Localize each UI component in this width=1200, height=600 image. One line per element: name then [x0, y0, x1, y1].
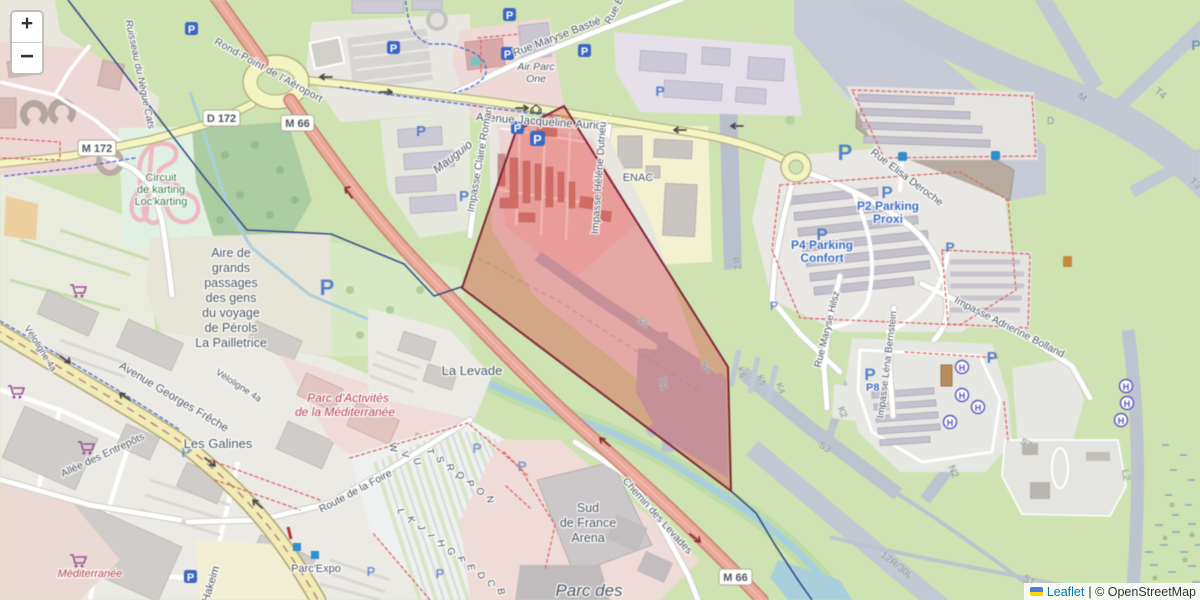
svg-text:Parc d'Activités: Parc d'Activités — [307, 391, 389, 405]
svg-text:D: D — [1047, 116, 1054, 127]
svg-text:Confort: Confort — [800, 251, 843, 265]
svg-text:H: H — [959, 391, 966, 401]
svg-text:P: P — [367, 564, 376, 579]
svg-text:D 172: D 172 — [207, 113, 236, 125]
svg-text:M 172: M 172 — [82, 143, 113, 155]
svg-text:passages: passages — [204, 276, 258, 290]
svg-text:P: P — [533, 132, 542, 147]
svg-text:Circuit: Circuit — [145, 172, 176, 184]
svg-text:La Pailletrice: La Pailletrice — [195, 336, 267, 350]
svg-text:R1: R1 — [656, 377, 669, 392]
svg-text:Méditerranée: Méditerranée — [58, 568, 123, 580]
svg-text:Les Galines: Les Galines — [184, 436, 253, 451]
svg-text:P: P — [506, 10, 513, 22]
svg-text:de karting: de karting — [137, 184, 185, 196]
svg-text:P: P — [655, 83, 664, 99]
svg-text:P: P — [390, 43, 397, 55]
svg-text:P2 Parking: P2 Parking — [857, 199, 919, 213]
svg-text:P: P — [1191, 37, 1200, 53]
svg-text:Arena: Arena — [571, 531, 604, 545]
svg-text:H: H — [1123, 382, 1130, 392]
svg-text:P: P — [436, 566, 445, 581]
svg-text:P: P — [504, 49, 511, 61]
svg-text:P: P — [416, 123, 426, 140]
svg-text:H: H — [959, 363, 966, 373]
svg-text:du voyage: du voyage — [202, 306, 260, 320]
svg-text:H: H — [975, 403, 982, 413]
svg-text:grands: grands — [212, 261, 250, 275]
svg-text:des gens: des gens — [206, 291, 257, 305]
svg-text:Loc'karting: Loc'karting — [135, 196, 188, 208]
svg-text:P: P — [987, 350, 998, 367]
svg-text:H: H — [947, 418, 954, 428]
svg-text:P: P — [945, 239, 954, 255]
svg-text:Aire de: Aire de — [211, 246, 251, 260]
svg-text:Parc'Expo: Parc'Expo — [291, 563, 341, 575]
svg-text:P: P — [517, 458, 526, 474]
svg-text:P: P — [187, 572, 194, 584]
svg-text:Proxi: Proxi — [873, 212, 903, 226]
svg-text:H: H — [1118, 416, 1125, 426]
svg-text:P: P — [188, 24, 195, 36]
svg-text:P4 Parking: P4 Parking — [791, 238, 853, 252]
svg-text:de Pérols: de Pérols — [205, 321, 258, 335]
svg-text:de la Méditerranée: de la Méditerranée — [295, 405, 395, 419]
svg-text:de France: de France — [560, 516, 616, 530]
svg-text:P: P — [472, 440, 481, 456]
svg-text:Air Parc: Air Parc — [516, 61, 555, 73]
svg-text:P: P — [320, 275, 335, 300]
svg-text:P: P — [770, 299, 778, 313]
svg-text:P: P — [581, 46, 588, 58]
svg-text:One: One — [526, 73, 546, 85]
svg-text:La Levade: La Levade — [442, 363, 503, 378]
svg-text:M 66: M 66 — [285, 118, 309, 130]
svg-text:Parc des: Parc des — [555, 581, 623, 600]
svg-text:M 66: M 66 — [723, 572, 747, 584]
svg-text:H: H — [1124, 399, 1131, 409]
svg-text:P: P — [838, 140, 853, 165]
svg-text:ENAC: ENAC — [623, 172, 654, 184]
svg-text:Sud: Sud — [577, 501, 599, 515]
svg-text:P8: P8 — [866, 382, 879, 394]
